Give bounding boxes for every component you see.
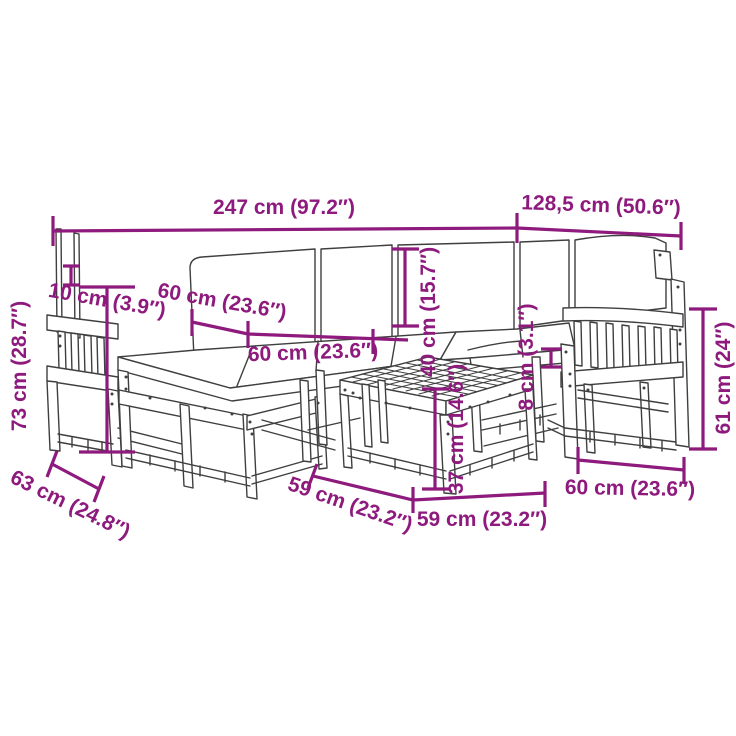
- dimension-label-table-height: 37 cm (14.6″): [445, 364, 469, 494]
- dimline-total-length: [53, 228, 517, 231]
- dimension-label-overall-height: 73 cm (28.7″): [8, 301, 32, 431]
- sofa-set-drawing: [47, 229, 689, 499]
- dimension-label-backrest-height: 40 cm (15.7″): [417, 247, 441, 377]
- dimline-module-depth: [52, 464, 99, 489]
- dimline-right-section: [517, 228, 681, 236]
- dimension-label-table-width: 59 cm (23.2″): [417, 508, 547, 532]
- dimension-label-total-length: 247 cm (97.2″): [213, 196, 355, 220]
- furniture-line-drawing: [0, 0, 736, 736]
- dimension-label-seat-width: 60 cm (23.6″): [247, 339, 378, 368]
- dimline-armchair-width: [578, 460, 684, 470]
- left-armchair: [47, 315, 182, 467]
- dimension-label-armchair-width: 60 cm (23.6″): [565, 476, 696, 502]
- dimension-label-seat-cushion-thickness: 8 cm (3.1″): [515, 304, 539, 411]
- coffee-table: [340, 357, 537, 494]
- dimension-label-armrest-height: 61 cm (24″): [712, 322, 736, 435]
